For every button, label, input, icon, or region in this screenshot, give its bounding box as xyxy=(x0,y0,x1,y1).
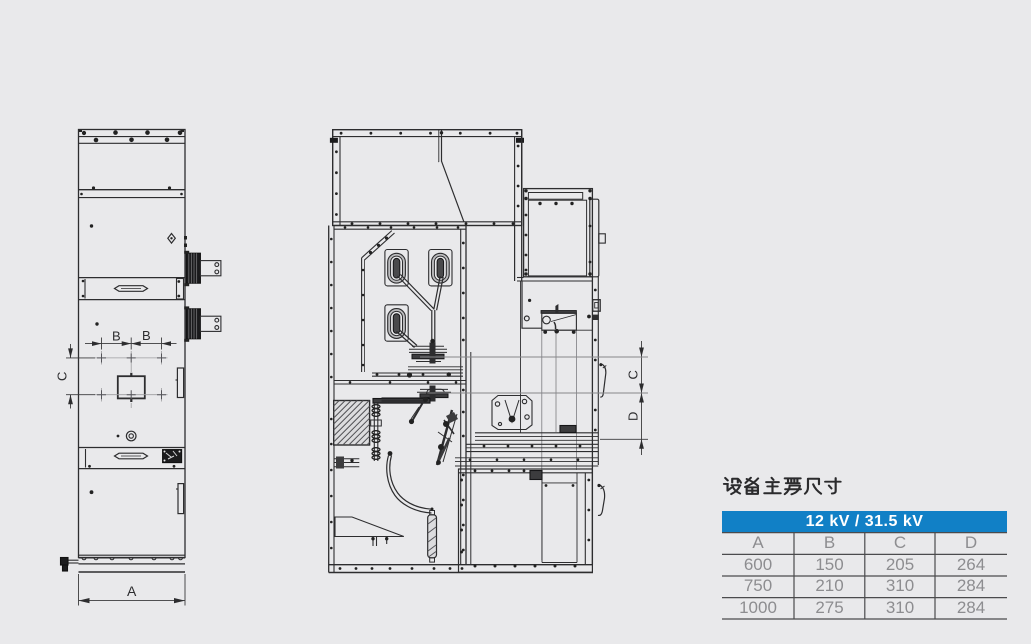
svg-text:C: C xyxy=(626,370,641,379)
svg-text:D: D xyxy=(626,412,641,421)
svg-text:A: A xyxy=(127,583,137,599)
svg-text:C: C xyxy=(55,372,70,381)
svg-text:B: B xyxy=(112,329,121,344)
svg-text:B: B xyxy=(142,328,151,343)
